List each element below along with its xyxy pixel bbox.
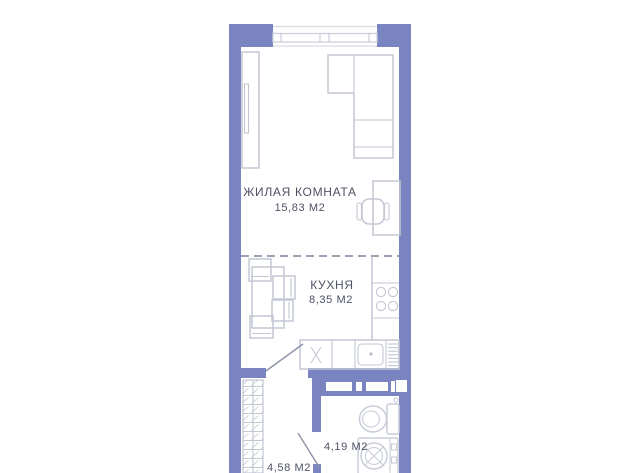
kitchen-label: КУХНЯ xyxy=(310,278,354,292)
sink-drain-icon xyxy=(369,352,372,355)
hallway-area: 4,58 М2 xyxy=(267,462,311,473)
hallway: 4,58 М2 xyxy=(243,380,311,473)
toilet-bowl-inner xyxy=(363,411,380,427)
window-mullion-left-icon xyxy=(273,34,281,43)
bathtub xyxy=(321,378,407,396)
wall-right xyxy=(399,24,411,473)
dining-chair xyxy=(250,316,273,338)
stove-burner-icon xyxy=(388,287,397,296)
floor-plan-canvas: ЖИЛАЯ КОМНАТА 15,83 М2 xyxy=(0,0,640,473)
wall-kitchen-stub xyxy=(241,368,266,378)
living-room: ЖИЛАЯ КОМНАТА 15,83 М2 xyxy=(242,52,400,235)
office-chair-armrest xyxy=(357,203,362,220)
cabinet-x-icon xyxy=(311,347,321,363)
kitchen-area: 8,35 М2 xyxy=(309,294,353,306)
toilet xyxy=(360,398,400,434)
kitchen-counter-bottom xyxy=(300,340,399,369)
stove-hob xyxy=(376,287,397,310)
counter-outline xyxy=(300,340,399,369)
office-chair-armrest xyxy=(385,203,390,220)
sofa xyxy=(328,55,393,158)
bathroom-area: 4,19 М2 xyxy=(324,441,368,453)
bathtub-detail xyxy=(396,380,407,392)
bathtub-basin xyxy=(326,382,352,391)
drainboard-icon xyxy=(388,344,398,366)
wall-left xyxy=(229,24,241,473)
window-mullion-middle-icon xyxy=(320,34,329,43)
floor-plan: ЖИЛАЯ КОМНАТА 15,83 М2 xyxy=(0,0,640,473)
living-room-area: 15,83 М2 xyxy=(275,202,326,214)
hall-closet xyxy=(243,380,263,473)
desk xyxy=(373,181,400,235)
window-mullion-right-icon xyxy=(369,34,377,43)
dining-chair xyxy=(272,300,293,321)
bathtub-detail xyxy=(391,381,395,392)
wall-top-left xyxy=(229,24,273,47)
wall-door-stub xyxy=(313,464,321,473)
toilet-tank xyxy=(387,404,399,434)
bathtub-basin xyxy=(366,382,388,391)
living-room-label: ЖИЛАЯ КОМНАТА xyxy=(243,185,357,199)
kitchen-door-leaf xyxy=(266,344,303,371)
wardrobe-door-detail xyxy=(245,84,249,133)
stove-burner-icon xyxy=(388,301,397,310)
stove-burner-icon xyxy=(376,301,385,310)
washing-machine-control xyxy=(392,444,397,450)
window xyxy=(273,27,377,47)
washing-machine-control xyxy=(392,457,397,463)
wall-bathroom-hall xyxy=(312,368,321,432)
toilet-button-icon xyxy=(394,398,398,402)
bathtub-detail xyxy=(356,382,362,391)
toilet-bowl xyxy=(360,406,387,432)
stove-burner-icon xyxy=(376,287,385,296)
kitchen: КУХНЯ 8,35 М2 xyxy=(249,257,399,371)
